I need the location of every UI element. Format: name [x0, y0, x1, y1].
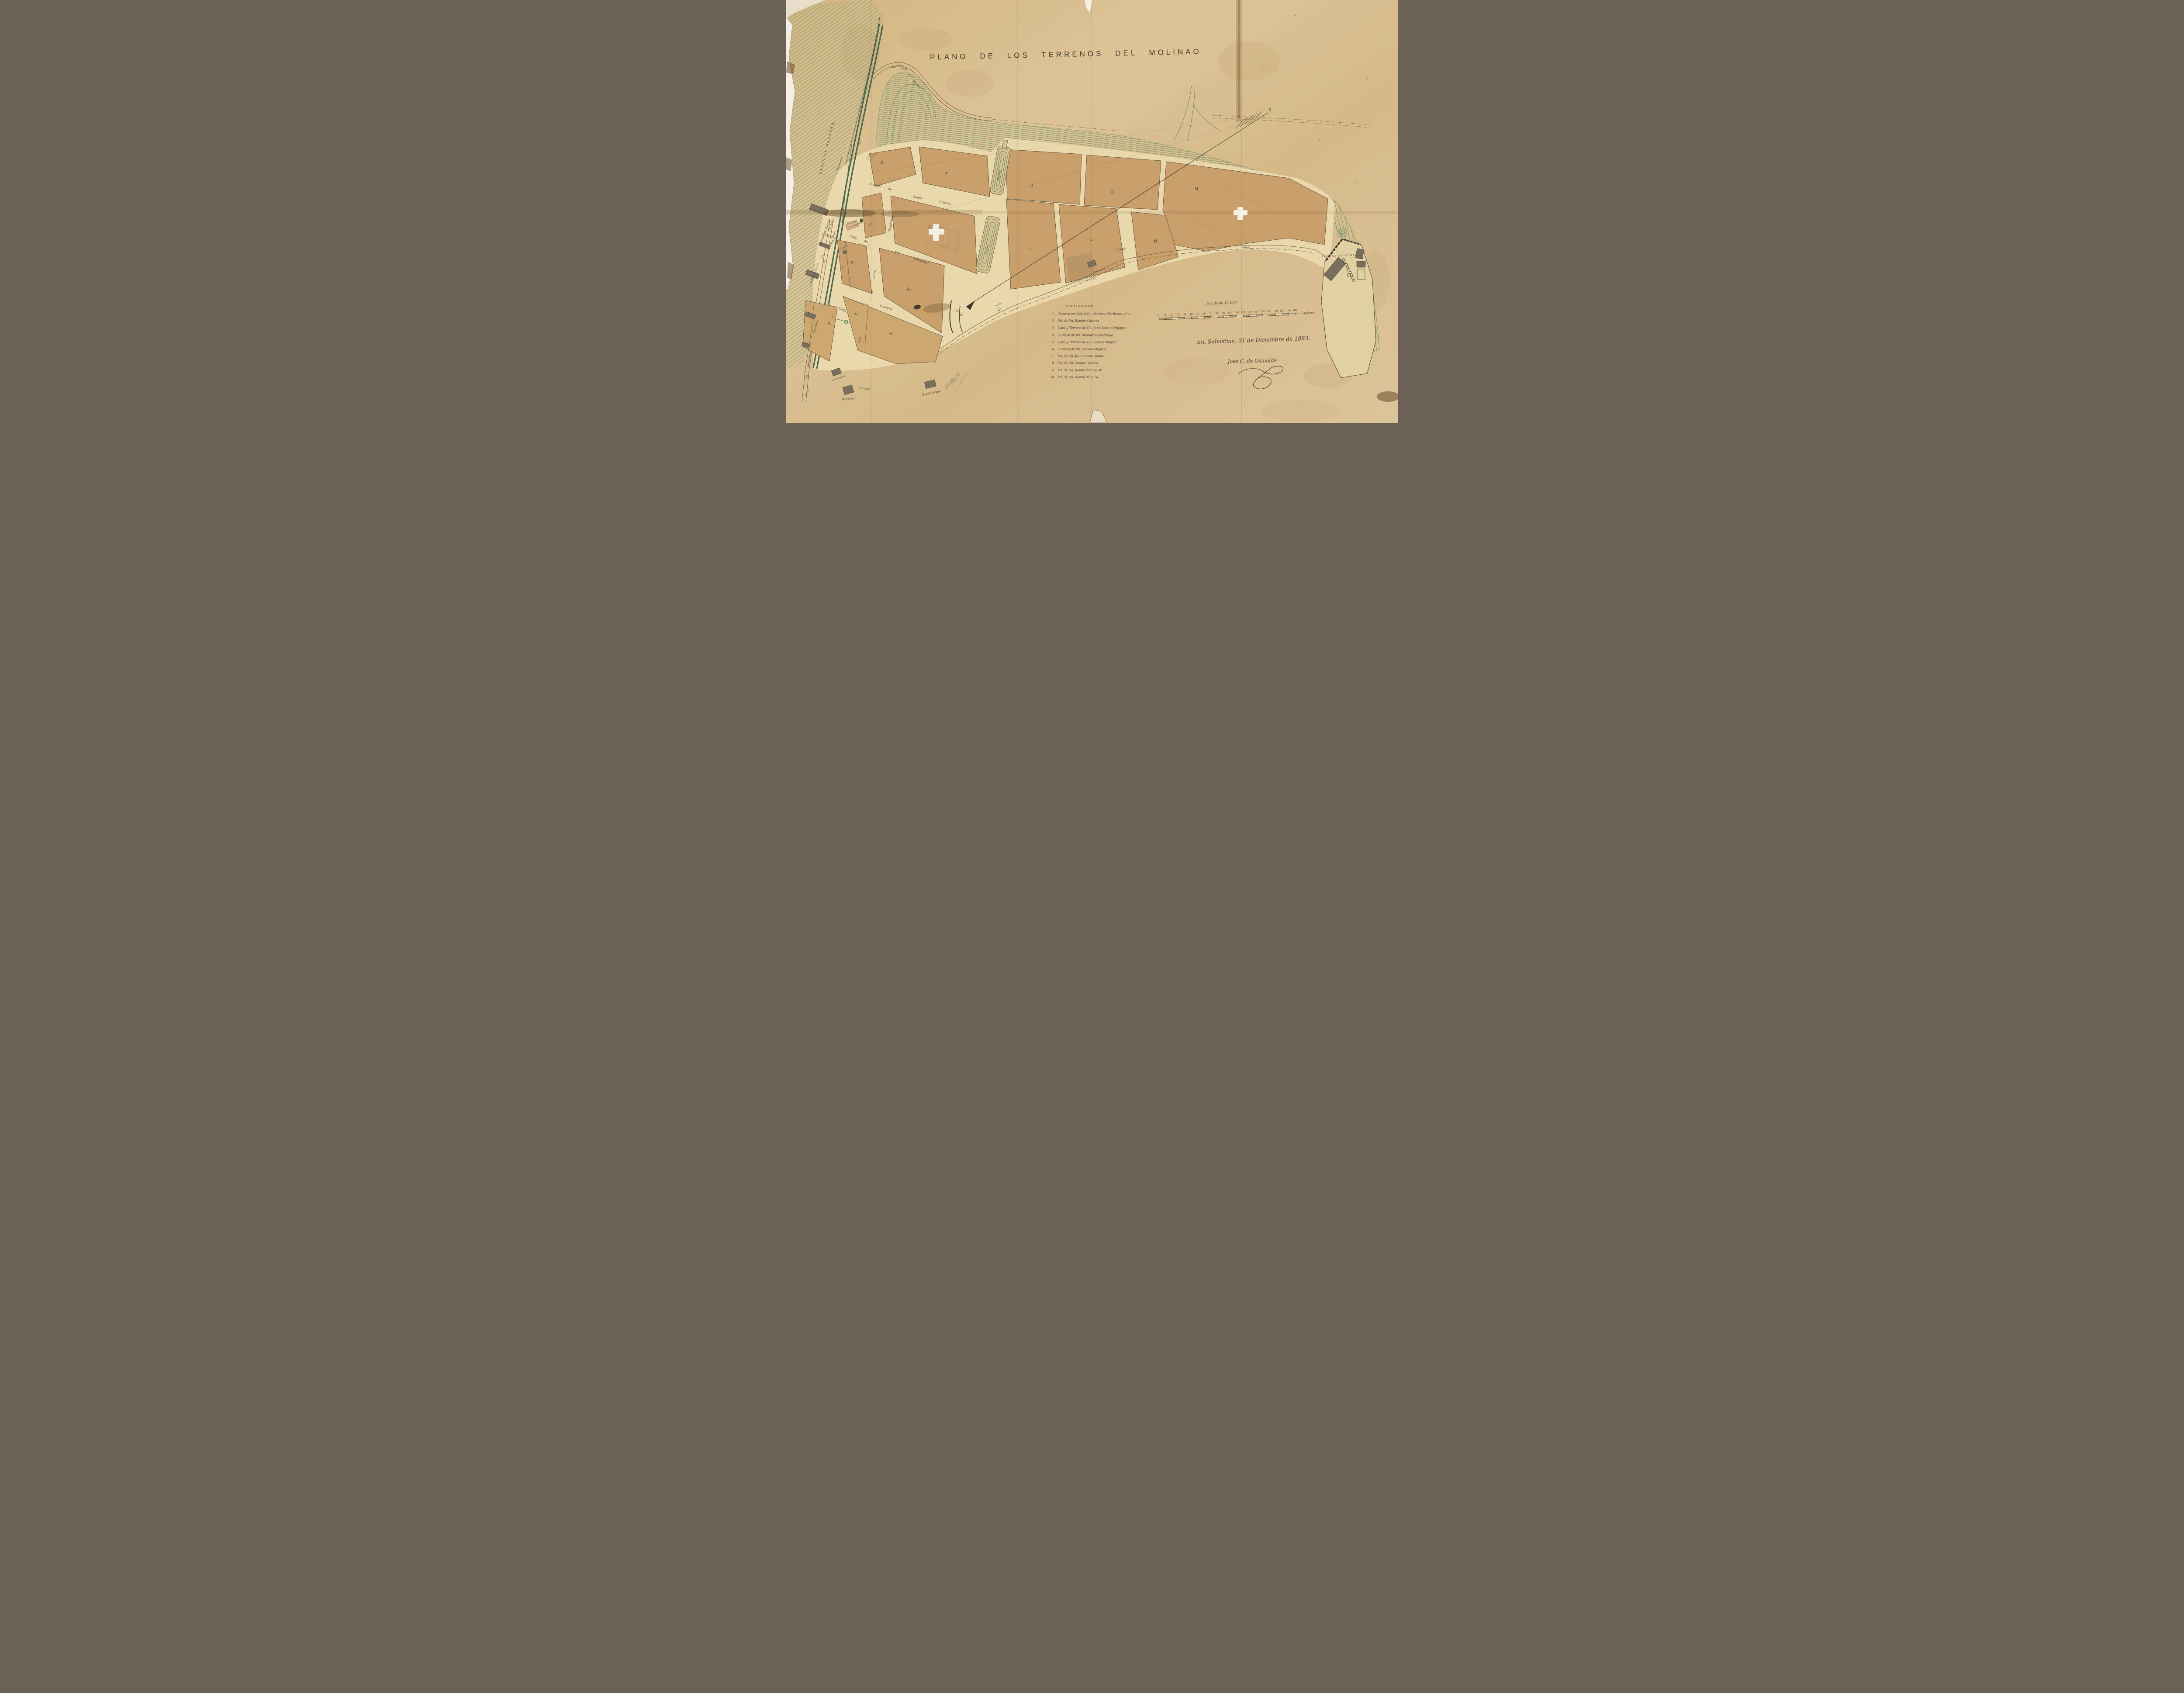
block-letter-I: I: [1030, 247, 1031, 252]
legend-title: ESPLICACION: [1066, 305, 1094, 308]
block-letter-G: G: [907, 287, 910, 292]
legend-item-text: Yd. de Dn. Santos Mùgica: [1058, 376, 1098, 379]
compass-n-label: N: [956, 309, 959, 313]
scale-segment: [1165, 318, 1172, 319]
block-letter-F: F: [929, 225, 932, 230]
molinao-map: PLANO DE LOS TERRENOS DEL MOLINAO BAHIA …: [786, 0, 1398, 423]
scale-tick-label: 200: [1292, 309, 1297, 312]
street-label: de: [870, 290, 874, 294]
scale-tick-label: 160: [1267, 310, 1272, 313]
scale-tick-label: 60: [1203, 313, 1206, 315]
scale-segment: [1250, 314, 1256, 316]
scale-segment: [1191, 317, 1198, 318]
parcel-number: 3: [809, 342, 811, 345]
scale-tick-label: 80: [1216, 312, 1219, 315]
scale-tick-label: 170: [1273, 310, 1278, 313]
scale-segment: [1282, 314, 1289, 315]
legend-item-text: Yd. de Dn. Manuel Urcola: [1058, 362, 1098, 365]
block-letter-C: C: [869, 223, 872, 228]
scale-segment: [1224, 316, 1230, 318]
parcel-number: 5: [812, 330, 813, 333]
block-letter-E: E: [945, 172, 948, 176]
block-letter-L: L: [1090, 237, 1092, 242]
scale-segment: [1275, 314, 1282, 315]
scale-segment: [1178, 317, 1185, 319]
parcel-number: 2: [807, 349, 809, 351]
scale-segment: [1269, 314, 1275, 316]
block-letter-J: J: [1031, 183, 1033, 188]
parcel-number: 6: [832, 315, 833, 318]
map-canvas: PLANO DE LOS TERRENOS DEL MOLINAO BAHIA …: [786, 0, 1398, 423]
legend-item-number: 5: [1052, 340, 1054, 344]
scale-segment: [1263, 314, 1269, 316]
scale-segment: [1243, 315, 1250, 317]
legend-item-text: Casa y Terreno de Dn. Juan Sanz é Yrigoy…: [1058, 326, 1127, 330]
legend-item-text: Yd. de Dn. Ramon Casares: [1058, 319, 1099, 323]
compass-m-label: M: [959, 313, 962, 317]
scale-tick-label: 120: [1241, 311, 1246, 314]
scale-tick-label: 140: [1254, 311, 1258, 313]
scale-tick-label: 50: [1196, 313, 1199, 315]
scale-segment: [1289, 313, 1295, 315]
block-letter-B: B: [850, 261, 853, 266]
scale-tick-label: 30: [1183, 313, 1187, 316]
legend-item-number: 3: [1052, 326, 1054, 330]
scale-tick-label: 150: [1260, 311, 1265, 313]
legend-item-number: 4: [1052, 333, 1054, 337]
block-letter-K: K: [1111, 190, 1114, 195]
parcel-number: 1: [1348, 268, 1349, 271]
legend-item-number: 8: [1052, 362, 1054, 365]
legend-item-number: 1: [1052, 312, 1054, 316]
parcel-number: 8: [842, 266, 843, 269]
scale-segment: [1211, 316, 1217, 318]
scale-tick-label: 70: [1209, 312, 1213, 315]
parcel-number: 4: [810, 336, 812, 339]
legend-item-number: 2: [1052, 319, 1054, 323]
block-letter-H: H: [889, 332, 892, 336]
legend-item-number: 10: [1050, 376, 1054, 379]
scale-tick-label: 110: [1234, 311, 1239, 314]
block-letter-N: N: [1195, 187, 1198, 191]
legend-item-text: Terreno de Dn. Manuel Usandizaga: [1058, 333, 1113, 337]
legend-item-number: 9: [1052, 369, 1054, 372]
block-K-shape: [1084, 155, 1161, 210]
scale-tick-label: 100: [1228, 311, 1233, 314]
ink-drop: [860, 218, 863, 223]
legend-item-number: 7: [1052, 355, 1054, 358]
scale-tick-label: 10: [1170, 314, 1174, 316]
scale-tick-label: 10: [1157, 314, 1161, 317]
scale-segment: [1230, 315, 1237, 317]
scale-tick-label: 40: [1190, 313, 1193, 316]
scale-segment: [1256, 314, 1263, 316]
scale-segment: [1217, 316, 1224, 318]
scale-segment: [1185, 317, 1192, 319]
scale-segment: [1204, 316, 1211, 318]
scale-tick-label: 180: [1280, 310, 1285, 312]
block-letter-D: D: [881, 160, 884, 165]
block-letter-M: M: [1154, 239, 1157, 244]
scale-tick-label: 190: [1286, 309, 1291, 312]
legend-item-text: Casa y Terreno de Dn. Santos Mùgica: [1058, 340, 1116, 344]
scale-segment: [1198, 317, 1204, 318]
block-letter-A: A: [828, 321, 831, 326]
scale-segment: [1237, 315, 1243, 317]
legend-item-text: Terreno vendido á Dn. Mariano Borderas y…: [1058, 312, 1131, 316]
scale-tick-label: 130: [1248, 311, 1252, 314]
compass-s-label: S: [1268, 108, 1271, 113]
legend-item-text: Terreno de Dn. Ramon Mùgica: [1058, 348, 1106, 351]
scale-tick-label: 20: [1177, 314, 1180, 316]
legend-item-number: 6: [1052, 348, 1054, 351]
legend-item-text: Yd. de Dn. Benito Olasagasti: [1058, 369, 1102, 372]
legend-item-text: Yd. de Dn. Jose Alonso Gomez: [1058, 355, 1105, 358]
scale-unit: Metros: [1303, 311, 1315, 315]
scale-tick-label: 90: [1222, 312, 1226, 314]
parcel-number: 10: [863, 341, 867, 344]
signature-name: José C. de Osinalde: [1227, 357, 1277, 364]
block-J-shape: [1006, 149, 1082, 204]
scale-segment: [1172, 318, 1178, 319]
